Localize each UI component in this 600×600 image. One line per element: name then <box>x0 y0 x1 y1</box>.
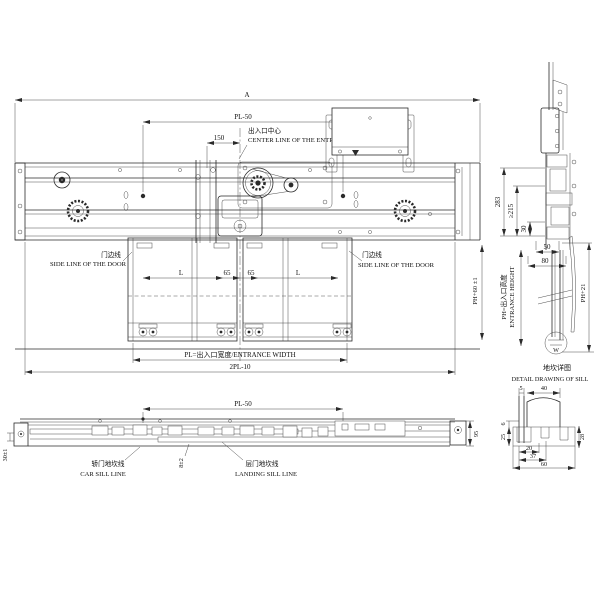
dim-a-label: A <box>244 91 249 99</box>
motor-pulley <box>243 168 273 198</box>
mechanism-section <box>546 153 576 332</box>
cad-drawing-elevator-door-operator: A PL-50 150 出入口中心 CENTER LINE OF THE ENT… <box>0 0 600 600</box>
guide-shoes <box>139 324 351 336</box>
door-clutch <box>335 421 405 436</box>
drawing-svg: A PL-50 150 出入口中心 CENTER LINE OF THE ENT… <box>0 0 600 600</box>
drive-unit <box>196 160 332 243</box>
dim-65-a-label: 65 <box>224 269 232 277</box>
dim-30-label: 30 <box>520 225 528 233</box>
car-sill-bar <box>30 429 298 434</box>
side-line-left-en: SIDE LINE OF THE DOOR <box>50 261 127 268</box>
dim-60-label: 60 <box>541 461 547 468</box>
dim-20-label: 20 <box>526 445 532 452</box>
dim-pl50-bottom-label: PL-50 <box>234 400 252 408</box>
landing-sill-label-en: LANDING SILL LINE <box>235 471 297 478</box>
dim-ph-cn-label: PH=出入口高度 <box>499 274 508 320</box>
top-view: A PL-50 150 出入口中心 CENTER LINE OF THE ENT… <box>15 91 480 375</box>
side-view: W 283 ≥215 30 50 80 PH+60 ±1 <box>472 62 594 354</box>
belt-small-pulley <box>284 178 298 192</box>
dim-entrance-width: PL=出入口宽度/ENTRANCE WIDTH <box>133 343 347 363</box>
dim-95-label: 95 <box>473 431 480 437</box>
dim-8-label: 8±2 <box>178 458 185 468</box>
dim-pl50-label: PL-50 <box>234 113 252 121</box>
pulleys <box>54 172 415 221</box>
sill-nose <box>527 398 560 427</box>
door-panel-right <box>243 238 352 341</box>
dim-row-l-65: L 65 65 L <box>143 269 338 278</box>
gear-pulley-left <box>68 201 88 221</box>
dim-30-bottom-label: 30±1 <box>2 449 9 462</box>
dim-283-label: 283 <box>494 196 502 207</box>
sill-assembly <box>14 419 466 446</box>
side-view-dims: 283 ≥215 30 50 80 PH+60 ±1 PH=出入口高度 ENTR… <box>472 168 592 352</box>
idler-pulley-left <box>54 172 70 188</box>
dim-40-label: 40 <box>541 385 547 392</box>
dim-37-label: 37 <box>530 453 536 460</box>
landing-sill-label: 层门地坎线 LANDING SILL LINE <box>222 442 297 478</box>
dim-l-left-label: L <box>179 269 183 277</box>
dim-overall-a: A <box>15 91 480 162</box>
car-sill-label: 轿门地坎线 CAR SILL LINE <box>80 447 140 478</box>
sill-title-cn: 地坎详图 <box>543 363 571 372</box>
dim-65-b-label: 65 <box>248 269 256 277</box>
side-line-left-cn: 门边线 <box>101 250 121 259</box>
dim-5-label: 5 <box>519 385 522 392</box>
side-line-label-left: 门边线 SIDE LINE OF THE DOOR <box>50 250 132 268</box>
side-line-label-right: 门边线 SIDE LINE OF THE DOOR <box>349 250 435 269</box>
hanger-plates-center <box>196 160 216 243</box>
sill-title-en: DETAIL DRAWING OF SILL <box>512 376 589 383</box>
dim-pl50-bottom: PL-50 <box>141 400 343 424</box>
dim-25-label: 25 <box>500 434 507 440</box>
dim-ph60-label: PH+60 ±1 <box>472 277 479 304</box>
entrance-center-label-cn: 出入口中心 <box>248 126 281 135</box>
dim-28-label: 28 <box>579 434 586 440</box>
door-panels <box>15 238 480 349</box>
landing-sill-label-cn: 层门地坎线 <box>246 459 279 468</box>
sill-detail: 地坎详图 DETAIL DRAWING OF SILL 5 40 6 <box>500 363 589 469</box>
car-sill-label-en: CAR SILL LINE <box>80 471 126 478</box>
detail-mark-label: W <box>553 347 559 354</box>
car-sill-label-cn: 轿门地坎线 <box>92 459 125 468</box>
side-line-right-cn: 门边线 <box>362 250 382 259</box>
dim-6-label: 6 <box>500 422 507 425</box>
side-line-right-en: SIDE LINE OF THE DOOR <box>358 262 435 269</box>
controller-box <box>326 108 414 172</box>
sill-extrusion-profile <box>513 427 575 446</box>
bottom-view: PL-50 <box>2 400 480 478</box>
dim-150-label: 150 <box>214 134 225 142</box>
dim-2pl10-label: 2PL-10 <box>230 363 252 371</box>
entrance-centerline: 出入口中心 CENTER LINE OF THE ENTRANCE <box>239 126 352 362</box>
landing-sill-bar <box>158 437 450 442</box>
dim-entrance-width-label: PL=出入口宽度/ENTRANCE WIDTH <box>184 350 295 359</box>
dim-215-label: ≥215 <box>507 203 515 218</box>
dim-50-label: 50 <box>544 243 552 251</box>
controller-box-side <box>541 108 559 153</box>
dim-l-right-label: L <box>296 269 300 277</box>
landing-panel-profile <box>569 236 576 332</box>
dim-ph-en-label: ENTRANCE HEIGHT <box>509 266 516 327</box>
door-panel-left <box>128 238 237 341</box>
dim-80-label: 80 <box>542 257 550 265</box>
dim-ph21-label: PH+21 <box>580 284 587 303</box>
gear-pulley-right <box>395 201 415 221</box>
